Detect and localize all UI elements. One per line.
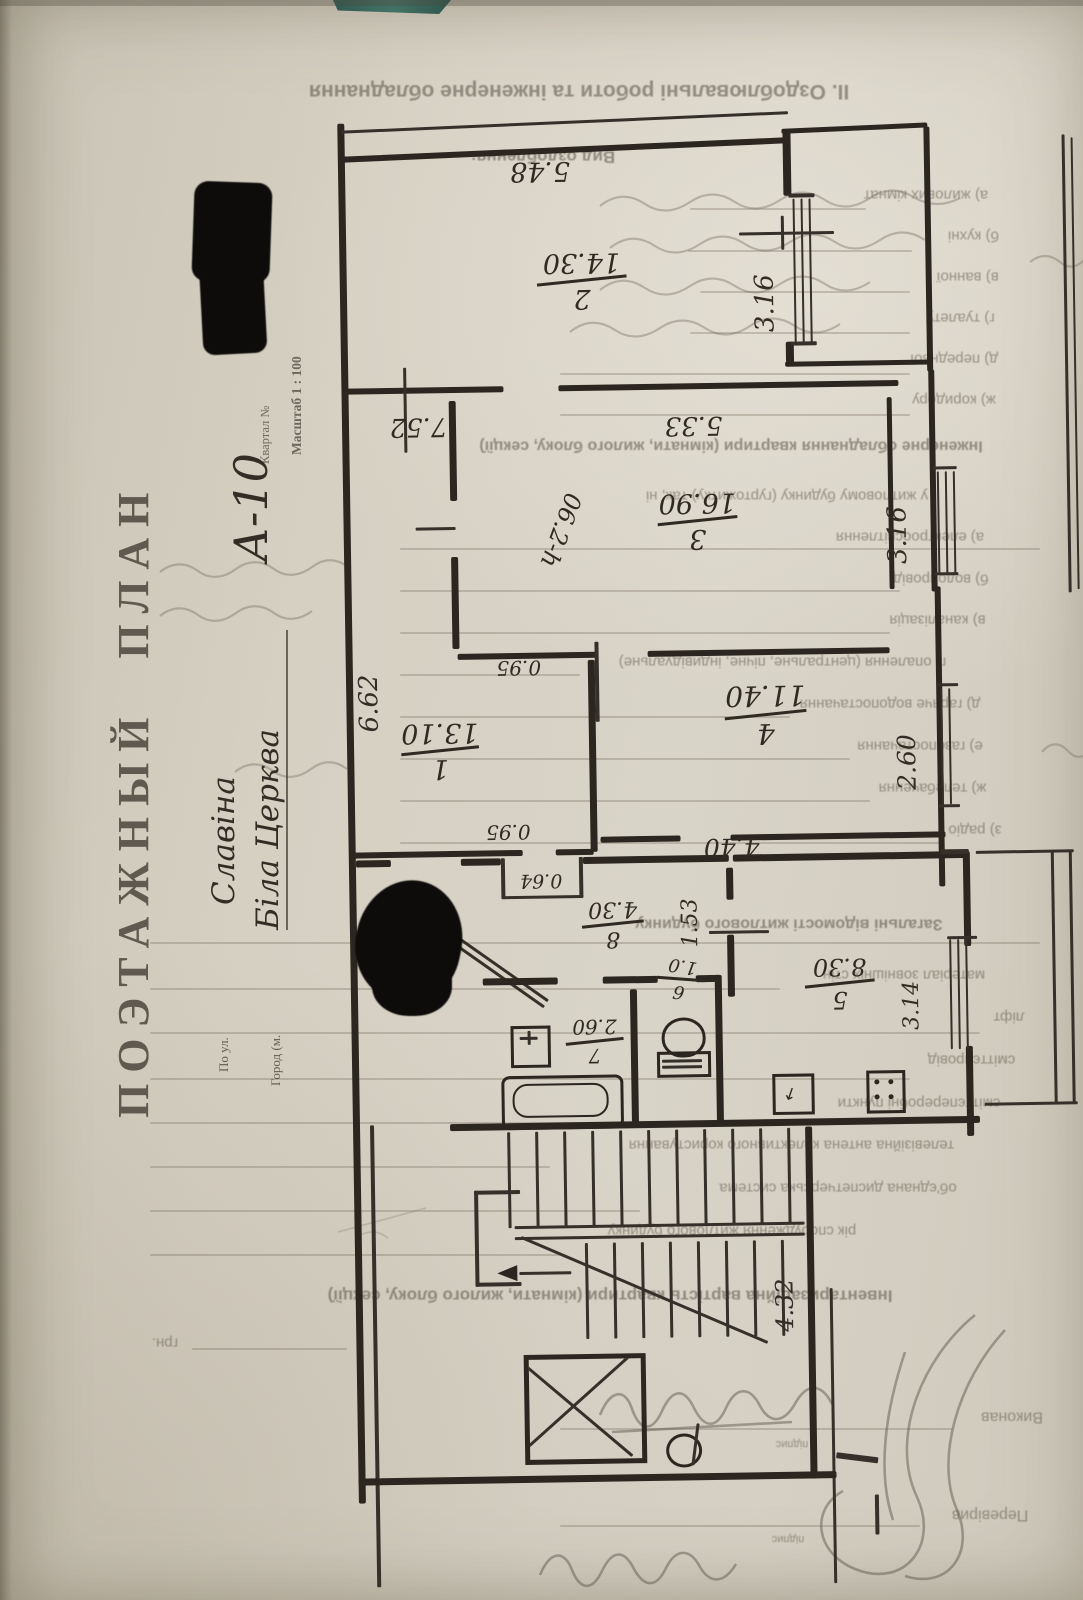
balcony-rail-top — [976, 849, 1074, 854]
window-loggia1-line — [800, 198, 804, 343]
stair-arrow-stem — [519, 1271, 571, 1275]
sink-mark — [528, 1031, 531, 1045]
wall-room4-bottom-a — [600, 835, 680, 842]
ghost-section-header: ІІ. Оздоблювальні роботи та інженерне об… — [140, 80, 1018, 103]
burner — [889, 1094, 894, 1099]
wall-corridor-right-lower — [451, 557, 459, 649]
toilet-tank-symbol — [657, 1051, 711, 1078]
stair-tread — [675, 1130, 679, 1226]
kitchen-sink-symbol: ↑ — [772, 1073, 815, 1115]
stair-landing-wall — [474, 1191, 480, 1287]
ghost-signature-caption-2: підпис — [756, 1533, 820, 1545]
kitchen-balcony-door-line — [949, 939, 953, 1049]
wall-loggia1-right — [923, 126, 933, 371]
room-number: 5 — [832, 986, 848, 1014]
stair-landing-wall — [475, 1282, 521, 1287]
wall-jog — [941, 849, 969, 854]
room-number: 2 — [573, 283, 591, 314]
wall-hall-top-a — [461, 858, 501, 866]
wall-bottom-tail — [875, 1494, 880, 1534]
wall-room3-bottom-b — [648, 647, 890, 657]
stair-tread — [647, 1130, 651, 1226]
kitchen-balcony-sill — [947, 936, 977, 939]
kitchen-balcony-door-line — [965, 939, 969, 1049]
bathtub-inner — [512, 1083, 609, 1119]
dimension-tick-line — [739, 231, 834, 235]
kitchen-balcony-door-line — [957, 939, 961, 1049]
room5-label: 58.30 — [804, 952, 875, 1014]
stair-tread — [507, 1132, 511, 1228]
room2-label: 214.30 — [536, 246, 627, 314]
stair-tread — [535, 1132, 539, 1228]
sink-arrow: ↑ — [781, 1081, 801, 1105]
tank-line — [662, 1059, 702, 1062]
dim-095-top: 0.95 — [494, 656, 544, 681]
room-number: 1 — [432, 753, 450, 784]
stair-arrow-head — [497, 1265, 517, 1281]
stair-tread — [787, 1128, 791, 1224]
stair-tread — [753, 1240, 757, 1336]
ghost-grn: грн. — [134, 1334, 196, 1351]
window-room4-line — [948, 688, 952, 804]
room3-label: 316.90 — [657, 487, 738, 555]
stair-tread — [619, 1130, 623, 1226]
window-room4-line — [940, 688, 944, 804]
wall-loggia1-partition-upper — [782, 132, 791, 196]
stair-tread — [669, 1242, 673, 1338]
floor-plan-drawing: ↑ 5.48 214.30 3.16 7.52 5.33 316.90 06.2… — [329, 99, 1083, 1531]
dim-752: 7.52 — [376, 411, 461, 442]
dim-662: 6.62 — [353, 627, 385, 732]
bath-sink-symbol — [510, 1026, 551, 1069]
form-rule — [192, 1348, 347, 1350]
stair-tread — [563, 1131, 567, 1227]
wall-outer-bottom — [359, 1471, 837, 1486]
wall-stair-inner-left — [370, 1125, 381, 1587]
elevator-x-line — [524, 1358, 634, 1457]
elevator-x-line — [524, 1353, 634, 1454]
dimension-tick — [781, 216, 785, 250]
stair-tread — [697, 1241, 701, 1337]
room-area: 4.30 — [588, 896, 637, 922]
wall-outer-right-mid — [935, 586, 946, 886]
dim-064: 0.64 — [509, 869, 573, 892]
window-loggia2-line — [953, 471, 957, 574]
wall-room1-bottom-a — [353, 850, 523, 859]
window-loggia1-sill — [788, 193, 814, 197]
window-loggia1-sill — [791, 341, 817, 345]
wall-outer-top-thin — [341, 111, 788, 133]
wall-stair-right — [805, 1126, 818, 1478]
wall-toilet-kitchen — [715, 975, 724, 1125]
window-loggia2-line — [945, 471, 949, 574]
stair-tread — [759, 1128, 763, 1224]
stair-landing-wall — [474, 1190, 520, 1195]
city-form-label: Город (м. — [268, 958, 284, 1086]
room-number: 8 — [606, 926, 620, 951]
dim-height-260: 06.2-h — [514, 489, 587, 625]
wall-loggia1-bottom — [785, 359, 931, 366]
entrance-door-leaf — [453, 933, 549, 1002]
entrance-door-leaf — [449, 939, 545, 1008]
page-title-stamp: ПОЭТАЖНЫЙ ПЛАН — [108, 388, 159, 1118]
tank-line — [662, 1065, 702, 1068]
stair-tread — [703, 1129, 707, 1225]
niche-wall — [579, 857, 584, 897]
scanned-floorplan-page: ІІ. Оздоблювальні роботи та інженерне об… — [0, 0, 1083, 1600]
room-area: 14.30 — [543, 246, 621, 278]
door-jamb-tick — [416, 527, 456, 531]
room-area: 11.40 — [725, 678, 806, 712]
handwritten-city-name: Біла Церква — [250, 630, 288, 930]
wall-entrance-stub — [356, 860, 391, 868]
wall-bath-top-b — [603, 976, 658, 984]
handwritten-building-number: А-10 — [224, 372, 278, 562]
door-jamb-kitchen — [709, 930, 769, 934]
dim-153: 1.53 — [677, 862, 703, 947]
redaction-mark-top — [198, 254, 267, 355]
balcony-rail-bottom — [985, 1101, 1078, 1105]
wall-bottom-step — [836, 1452, 878, 1463]
burner — [875, 1094, 880, 1099]
dim-316-loggia1: 3.16 — [749, 237, 780, 332]
room1-label: 113.10 — [401, 717, 480, 785]
room-number: 4 — [757, 717, 775, 750]
window-room4-sill — [938, 804, 960, 807]
wall-room1-bottom-b — [556, 849, 594, 856]
wall-bath-top-a — [483, 977, 558, 985]
wall-bath-toilet — [630, 989, 639, 1126]
dim-260-window: 2.60 — [891, 690, 922, 790]
wall-kitchen-right-a — [963, 851, 971, 946]
room8-label: 84.30 — [581, 896, 644, 952]
wall-hall-kitchen-b — [727, 935, 735, 997]
burner — [888, 1079, 893, 1084]
dim-440: 4.40 — [690, 832, 772, 862]
balcony-rail-right — [1051, 852, 1058, 1104]
stair-landing-line — [515, 1233, 805, 1241]
room-area: 1.0 — [667, 954, 699, 979]
window-loggia1-line — [792, 199, 796, 344]
balcony-rail-right — [1069, 851, 1076, 1103]
redaction-mark-entrance — [372, 952, 452, 1016]
room7-label: 72.60 — [565, 1014, 624, 1068]
window-loggia2-sill — [934, 572, 958, 575]
room4-label: 411.40 — [724, 678, 807, 750]
wall-hall-kitchen-a — [726, 868, 734, 900]
niche-wall — [501, 858, 506, 898]
stair-tread — [731, 1129, 735, 1225]
room-area: 8.30 — [813, 953, 867, 982]
window-loggia2-sill — [933, 466, 957, 469]
stair-tread — [613, 1243, 617, 1339]
elevator-shaft — [524, 1353, 648, 1465]
window-loggia1-line — [808, 198, 812, 343]
room-number: 3 — [689, 523, 707, 554]
stair-landing-line — [515, 1222, 805, 1230]
dim-533: 5.33 — [646, 409, 741, 440]
window-loggia2-line — [937, 471, 941, 574]
wall-loggia1-top — [781, 122, 927, 133]
adjacent-wall-line — [1062, 134, 1072, 592]
dim-432: 4.32 — [770, 1244, 799, 1332]
street-form-label: По ул. — [216, 954, 232, 1072]
wall-room2-bottom-b — [558, 380, 898, 391]
stair-tread — [591, 1131, 595, 1227]
burner — [874, 1079, 879, 1084]
handwritten-street-name: Славіна — [206, 737, 242, 905]
room-number: 6 — [671, 981, 686, 1004]
room6-label: 61.0 — [653, 952, 708, 1006]
room-area: 2.60 — [572, 1014, 617, 1039]
room-number: 7 — [588, 1044, 601, 1068]
scale-label: Масштаб 1 : 100 — [289, 255, 305, 455]
dim-314: 3.14 — [898, 950, 924, 1030]
dim-095-bottom: 0.95 — [480, 820, 536, 845]
dim-548: 5.48 — [490, 155, 590, 188]
bathtub-symbol — [501, 1074, 624, 1130]
niche-wall — [501, 895, 583, 899]
room-area: 13.10 — [401, 717, 479, 749]
wall-room2-bottom-a — [345, 386, 503, 394]
stair-tread — [585, 1243, 589, 1339]
window-room4-sill — [936, 683, 958, 686]
stove-symbol — [866, 1070, 906, 1114]
room-area: 16.90 — [658, 487, 736, 519]
dim-316-loggia2: 3.16 — [882, 464, 914, 564]
